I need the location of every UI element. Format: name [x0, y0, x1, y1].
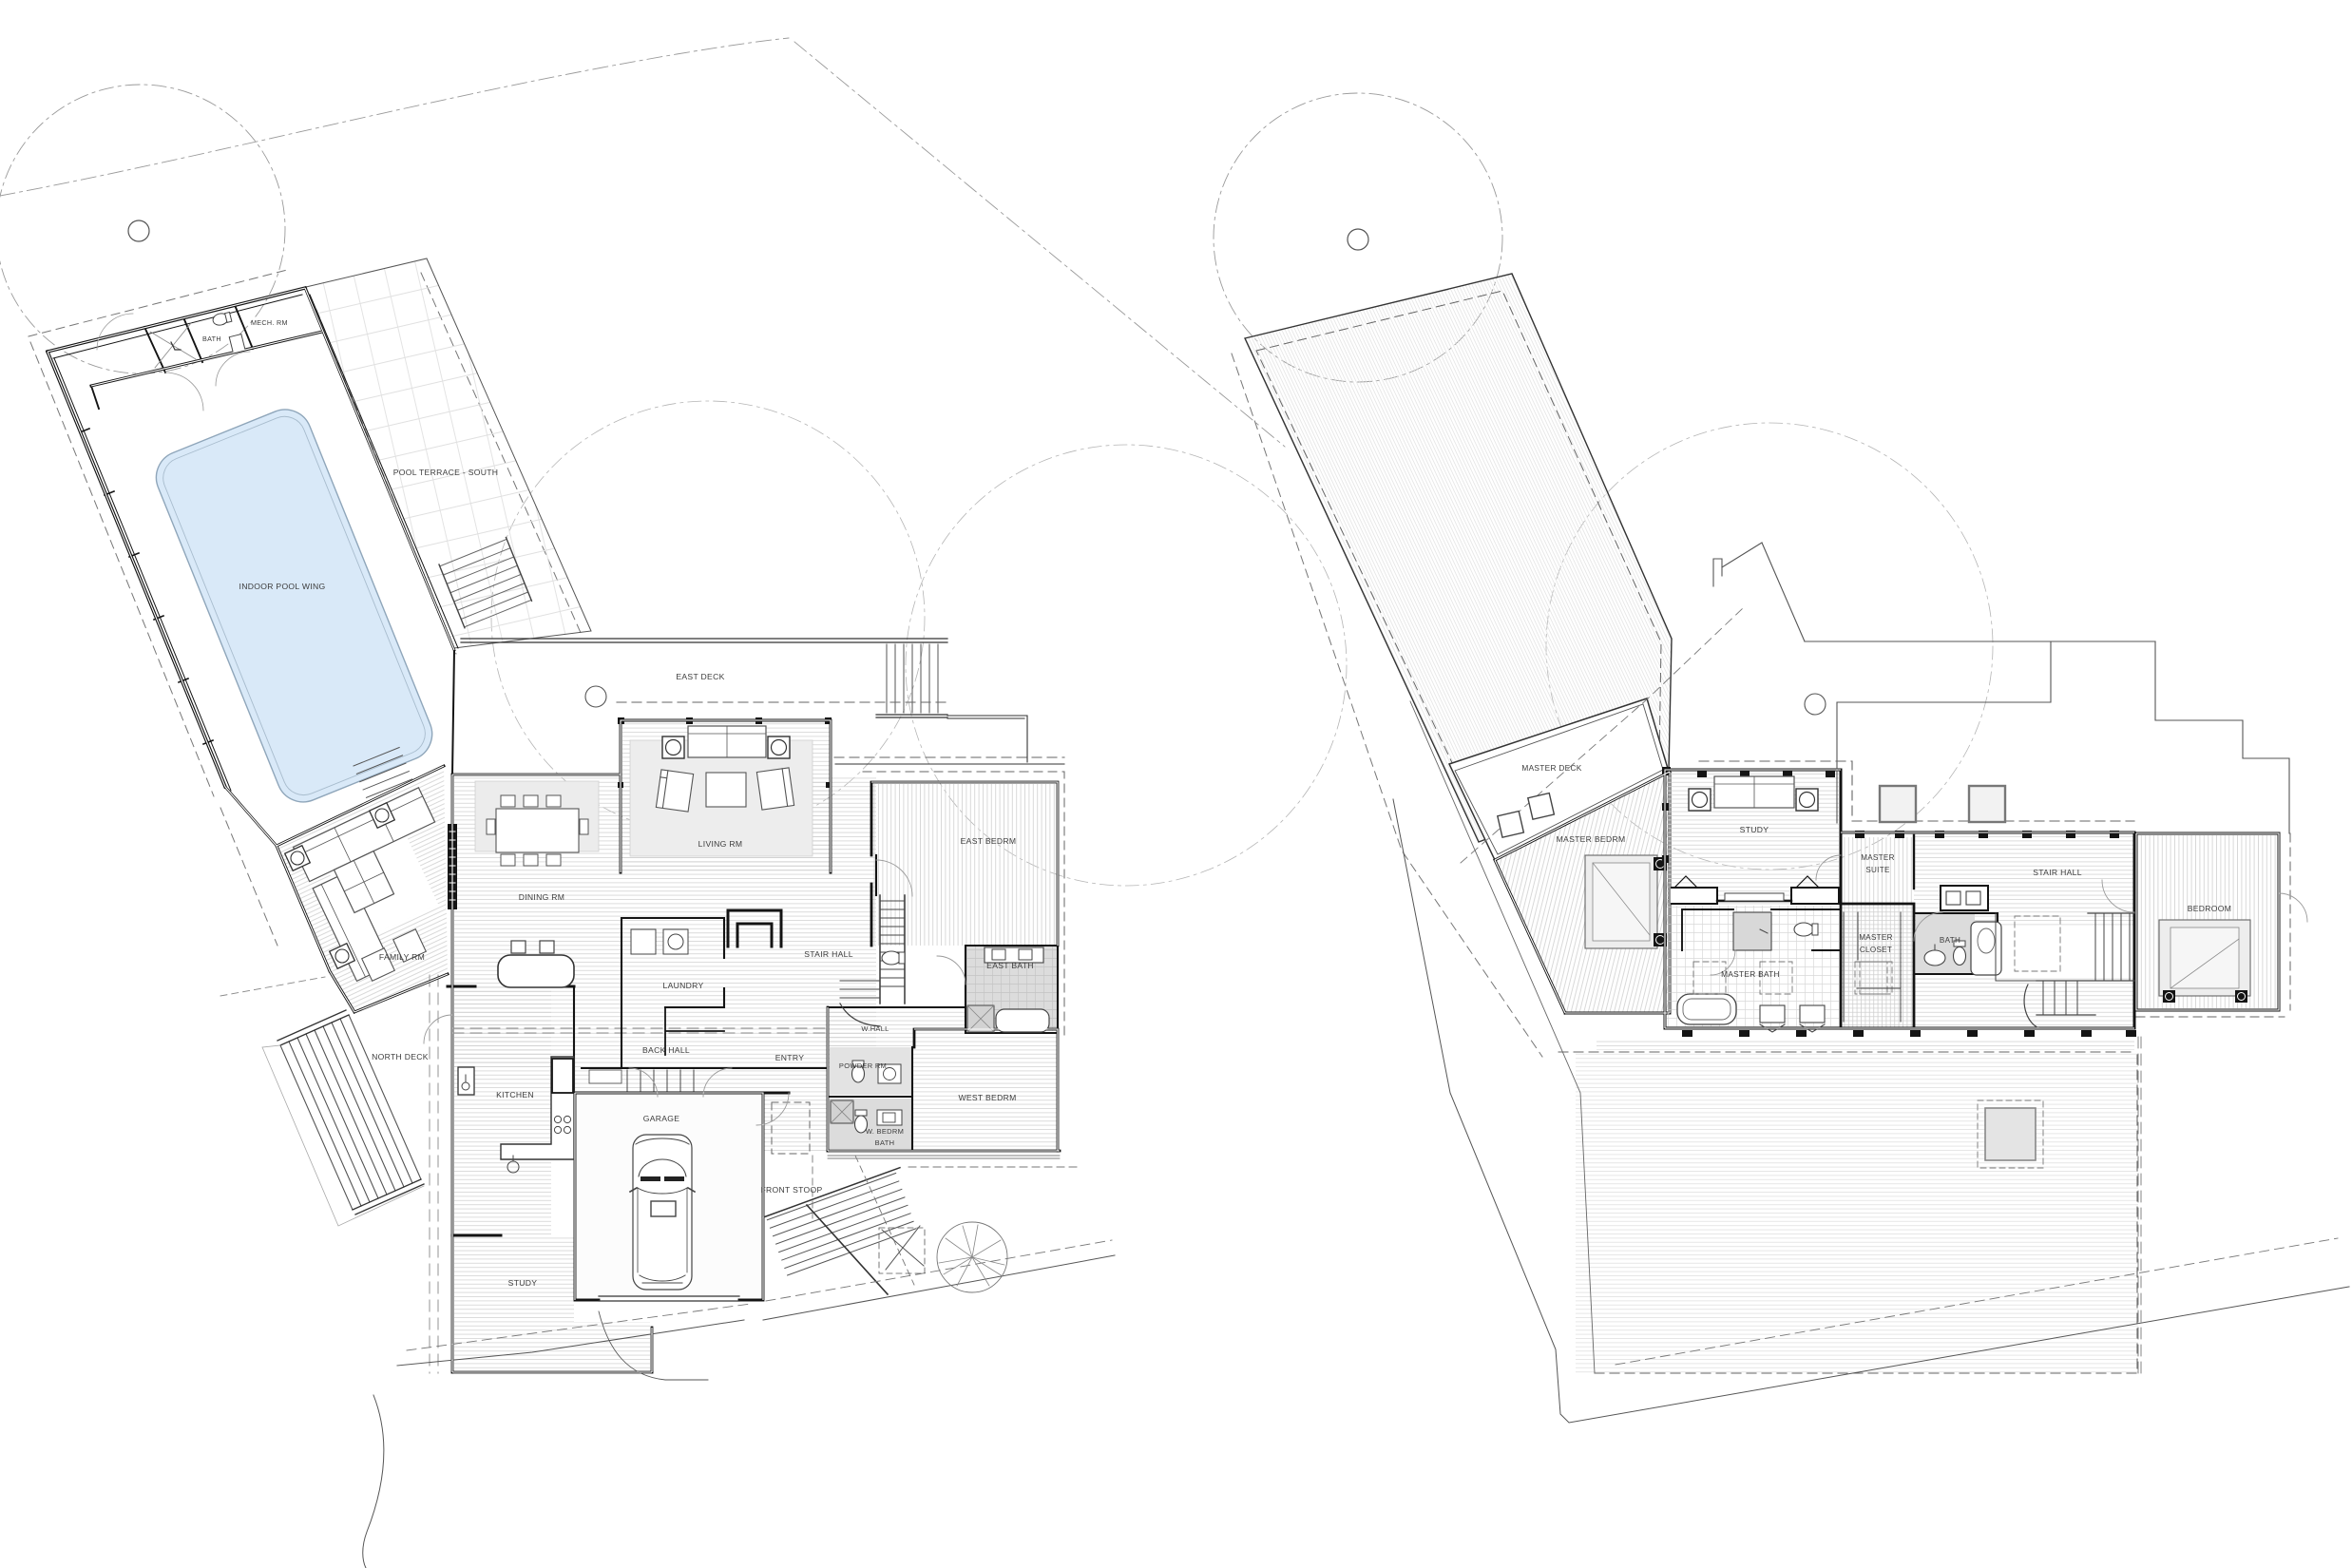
svg-text:KITCHEN: KITCHEN [496, 1090, 534, 1100]
svg-text:DINING RM: DINING RM [519, 892, 565, 902]
svg-text:SUITE: SUITE [1865, 866, 1890, 874]
svg-text:MASTER: MASTER [1861, 853, 1895, 862]
svg-text:BACK HALL: BACK HALL [642, 1045, 690, 1055]
svg-text:BEDROOM: BEDROOM [2188, 904, 2232, 913]
svg-text:LIVING RM: LIVING RM [698, 839, 743, 849]
svg-text:BATH: BATH [875, 1138, 895, 1147]
svg-text:EAST DECK: EAST DECK [676, 672, 724, 681]
svg-text:LAUNDRY: LAUNDRY [662, 981, 703, 990]
svg-text:POWDER RM: POWDER RM [839, 1061, 887, 1070]
svg-text:EAST BEDRM: EAST BEDRM [961, 836, 1017, 846]
svg-text:STUDY: STUDY [1740, 825, 1769, 834]
svg-text:BATH: BATH [1940, 936, 1960, 945]
svg-text:STAIR HALL: STAIR HALL [2033, 868, 2082, 877]
svg-text:BATH: BATH [202, 335, 221, 343]
svg-text:STUDY: STUDY [508, 1278, 538, 1288]
svg-text:MASTER BATH: MASTER BATH [1721, 969, 1780, 979]
svg-text:FRONT STOOP: FRONT STOOP [760, 1185, 822, 1195]
svg-text:NORTH DECK: NORTH DECK [372, 1052, 429, 1061]
svg-text:MASTER BEDRM: MASTER BEDRM [1557, 834, 1626, 844]
svg-text:FAMILY RM: FAMILY RM [379, 952, 425, 962]
svg-text:EAST BATH: EAST BATH [986, 961, 1034, 970]
svg-text:INDOOR POOL WING: INDOOR POOL WING [239, 582, 326, 591]
svg-text:MECH. RM: MECH. RM [251, 318, 288, 327]
svg-text:POOL TERRACE - SOUTH: POOL TERRACE - SOUTH [393, 468, 499, 477]
svg-text:W. BEDRM: W. BEDRM [866, 1127, 904, 1136]
svg-text:W.HALL: W.HALL [861, 1024, 889, 1033]
svg-text:CLOSET: CLOSET [1860, 946, 1892, 954]
svg-text:WEST BEDRM: WEST BEDRM [958, 1093, 1016, 1102]
svg-text:GARAGE: GARAGE [643, 1114, 680, 1123]
svg-text:STAIR HALL: STAIR HALL [804, 949, 853, 959]
svg-text:MASTER: MASTER [1859, 933, 1893, 942]
svg-text:ENTRY: ENTRY [775, 1053, 804, 1062]
